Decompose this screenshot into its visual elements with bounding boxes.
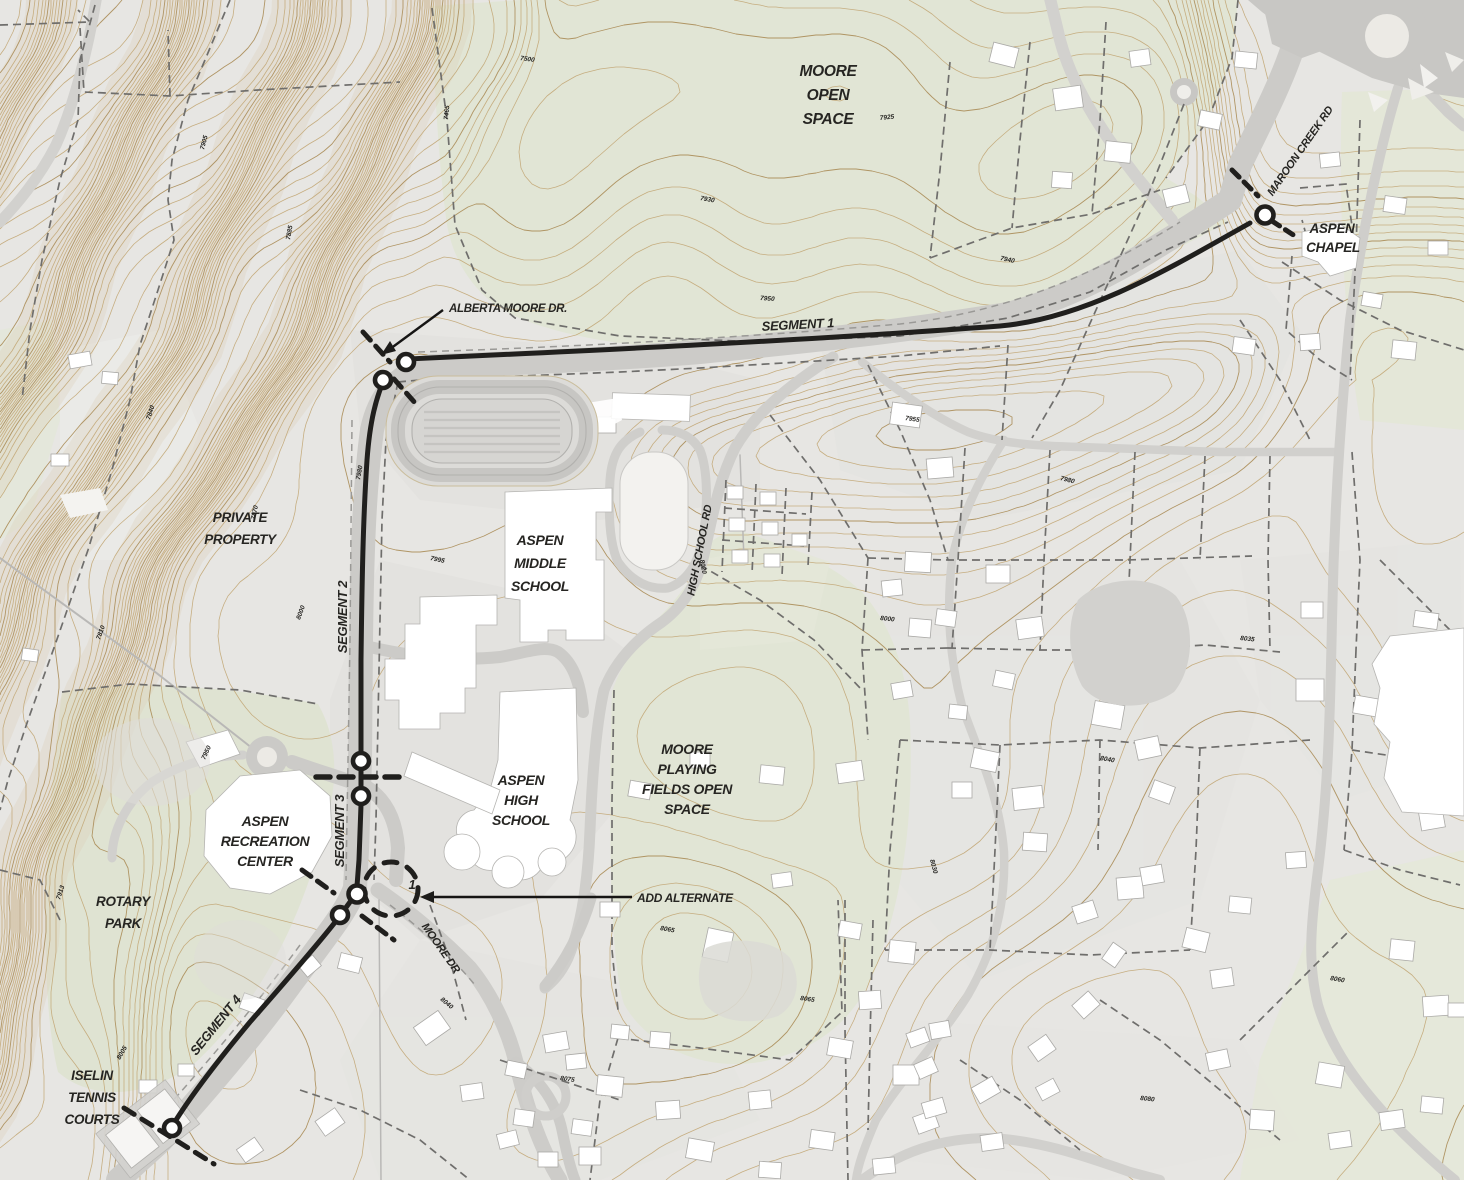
svg-text:ROTARY: ROTARY [96, 894, 152, 909]
svg-text:FIELDS OPEN: FIELDS OPEN [642, 781, 733, 797]
svg-text:CENTER: CENTER [237, 853, 294, 869]
svg-text:ASPEN: ASPEN [1308, 221, 1355, 236]
svg-text:PARK: PARK [105, 916, 143, 931]
svg-text:ALBERTA MOORE DR.: ALBERTA MOORE DR. [448, 303, 567, 315]
svg-text:ADD ALTERNATE: ADD ALTERNATE [636, 891, 734, 905]
svg-text:SCHOOL: SCHOOL [492, 812, 550, 828]
svg-text:ASPEN: ASPEN [497, 772, 546, 788]
svg-text:PROPERTY: PROPERTY [204, 532, 278, 547]
svg-text:MIDDLE: MIDDLE [514, 555, 567, 571]
svg-text:1: 1 [409, 877, 416, 892]
svg-text:SCHOOL: SCHOOL [511, 578, 569, 594]
svg-text:7950: 7950 [760, 295, 775, 303]
svg-text:HIGH: HIGH [504, 792, 539, 808]
svg-text:SEGMENT 2: SEGMENT 2 [335, 580, 350, 653]
svg-text:SPACE: SPACE [803, 111, 855, 128]
svg-text:PRIVATE: PRIVATE [213, 510, 269, 525]
svg-text:7465: 7465 [443, 105, 451, 120]
svg-text:RECREATION: RECREATION [221, 833, 311, 849]
svg-text:MOORE: MOORE [661, 741, 713, 757]
svg-text:ISELIN: ISELIN [71, 1068, 113, 1083]
svg-text:SEGMENT 3: SEGMENT 3 [332, 794, 347, 867]
svg-text:MOORE: MOORE [799, 63, 857, 80]
svg-text:PLAYING: PLAYING [657, 761, 716, 777]
svg-text:ASPEN: ASPEN [516, 532, 565, 548]
svg-text:COURTS: COURTS [65, 1112, 120, 1127]
svg-text:CHAPEL: CHAPEL [1306, 240, 1360, 255]
svg-text:ASPEN: ASPEN [241, 813, 290, 829]
svg-text:SPACE: SPACE [664, 801, 711, 817]
svg-text:TENNIS: TENNIS [68, 1090, 116, 1105]
svg-text:OPEN: OPEN [807, 87, 851, 104]
